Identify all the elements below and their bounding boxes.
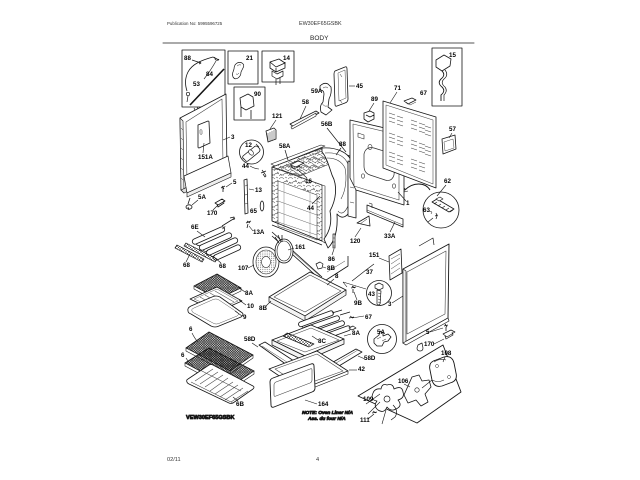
svg-text:3: 3 xyxy=(231,134,235,141)
svg-text:58D: 58D xyxy=(364,355,376,362)
svg-text:1: 1 xyxy=(406,200,410,207)
svg-text:90: 90 xyxy=(254,91,261,98)
svg-text:161: 161 xyxy=(295,244,306,251)
svg-text:84: 84 xyxy=(206,71,213,78)
svg-text:9: 9 xyxy=(243,314,247,321)
svg-text:5A: 5A xyxy=(198,194,206,201)
svg-text:68: 68 xyxy=(183,262,190,269)
svg-text:62: 62 xyxy=(444,178,451,185)
svg-text:5: 5 xyxy=(233,179,237,186)
svg-text:Publication No: 5995596725: Publication No: 5995596725 xyxy=(167,21,223,26)
svg-text:57: 57 xyxy=(449,126,456,133)
svg-text:NOTE: Oven Liner N/A: NOTE: Oven Liner N/A xyxy=(302,410,353,416)
svg-text:120: 120 xyxy=(350,238,361,245)
svg-text:58A: 58A xyxy=(279,143,291,150)
svg-text:8A: 8A xyxy=(245,290,253,297)
svg-text:5A: 5A xyxy=(377,329,385,336)
svg-text:111: 111 xyxy=(360,417,370,424)
svg-text:45: 45 xyxy=(356,83,363,90)
svg-text:3: 3 xyxy=(388,301,392,308)
svg-text:44: 44 xyxy=(242,163,249,170)
svg-text:6: 6 xyxy=(189,326,193,333)
svg-text:89: 89 xyxy=(371,96,378,103)
svg-text:13: 13 xyxy=(255,187,262,194)
svg-text:BODY: BODY xyxy=(310,35,329,42)
svg-text:170: 170 xyxy=(424,341,435,348)
svg-text:67: 67 xyxy=(365,314,372,321)
svg-text:65: 65 xyxy=(250,208,257,215)
svg-text:170: 170 xyxy=(207,210,218,217)
svg-text:33A: 33A xyxy=(384,233,396,240)
svg-text:5: 5 xyxy=(426,329,430,336)
svg-text:44: 44 xyxy=(307,205,314,212)
svg-text:58D: 58D xyxy=(244,336,256,343)
svg-text:8C: 8C xyxy=(318,338,326,345)
svg-text:21: 21 xyxy=(246,55,253,62)
svg-text:8: 8 xyxy=(335,273,339,280)
svg-text:88: 88 xyxy=(184,55,191,62)
svg-text:14: 14 xyxy=(283,55,290,62)
svg-text:151A: 151A xyxy=(198,154,213,161)
svg-text:109: 109 xyxy=(363,396,374,403)
svg-text:6B: 6B xyxy=(236,401,244,408)
svg-text:71: 71 xyxy=(394,85,401,92)
svg-text:16: 16 xyxy=(305,178,312,185)
svg-text:63: 63 xyxy=(423,207,430,214)
svg-text:9B: 9B xyxy=(354,300,362,307)
svg-text:108: 108 xyxy=(441,350,452,357)
svg-text:10: 10 xyxy=(247,303,254,310)
svg-text:56B: 56B xyxy=(321,121,333,128)
svg-text:12: 12 xyxy=(245,142,252,149)
svg-text:86: 86 xyxy=(328,256,335,263)
svg-text:6E: 6E xyxy=(191,224,199,231)
svg-text:8B: 8B xyxy=(327,265,335,272)
svg-text:107: 107 xyxy=(238,265,249,272)
svg-text:EW30EF65GSBK: EW30EF65GSBK xyxy=(299,21,342,27)
svg-text:68: 68 xyxy=(219,263,226,270)
svg-text:15: 15 xyxy=(449,52,456,59)
svg-text:4: 4 xyxy=(316,457,319,463)
svg-text:164: 164 xyxy=(318,401,329,408)
svg-text:02/11: 02/11 xyxy=(167,457,181,463)
svg-text:42: 42 xyxy=(358,366,365,373)
svg-text:106: 106 xyxy=(398,378,409,385)
svg-text:53: 53 xyxy=(193,81,200,88)
svg-text:13A: 13A xyxy=(253,229,265,236)
svg-text:67: 67 xyxy=(420,90,427,97)
svg-text:6: 6 xyxy=(181,352,185,359)
svg-text:58: 58 xyxy=(302,99,309,106)
svg-text:37: 37 xyxy=(366,269,373,276)
svg-text:43: 43 xyxy=(368,291,375,298)
svg-text:VEW30EF65GSBK: VEW30EF65GSBK xyxy=(186,415,235,421)
svg-text:151: 151 xyxy=(369,252,380,259)
svg-text:Ass. du four N/A: Ass. du four N/A xyxy=(307,416,346,422)
svg-text:121: 121 xyxy=(272,113,283,120)
svg-text:59A: 59A xyxy=(311,88,323,95)
svg-text:88: 88 xyxy=(339,141,346,148)
svg-text:8A: 8A xyxy=(352,330,360,337)
